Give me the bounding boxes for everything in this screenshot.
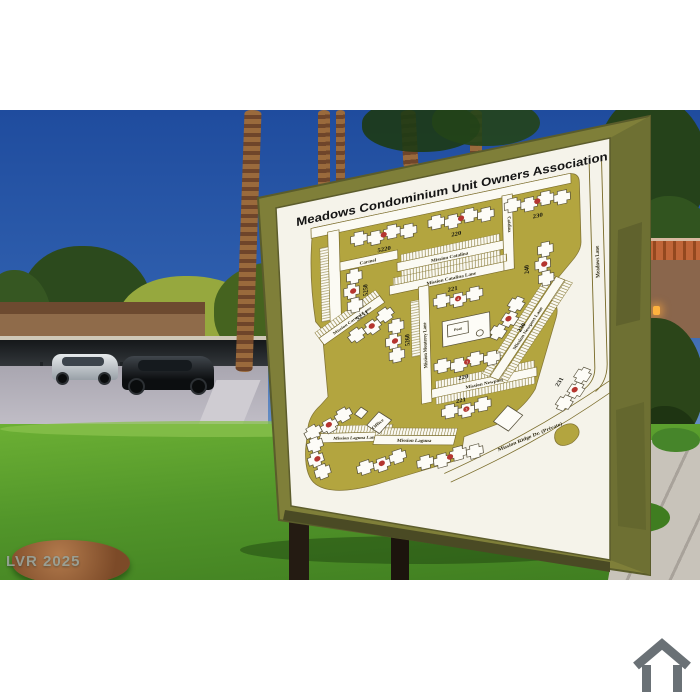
watermark: LVR 2025 [6, 553, 80, 570]
marker-label: 4 [457, 297, 459, 301]
parking-row [320, 247, 330, 323]
marker-label: 3 [465, 408, 467, 412]
parking-row [375, 428, 457, 436]
parking-row [410, 300, 420, 358]
listing-photo-page: { "photo": { "watermark": "LVR 2025", "s… [0, 0, 700, 700]
building-label: 240 [523, 264, 531, 274]
street-label: Mission Laguna [396, 439, 432, 444]
street-label: Meadows Lane [594, 244, 601, 278]
home-icon [630, 634, 694, 694]
building-label: 5260 [404, 333, 412, 346]
photograph: Meadows Condominium Unit Owners Associat… [0, 110, 700, 580]
frame-mottling [616, 402, 646, 530]
community-map-sign: Meadows Condominium Unit Owners Associat… [0, 110, 700, 580]
building-label: 5250 [362, 283, 370, 296]
street-label: Catalina [506, 216, 512, 234]
frame-mottling [616, 222, 642, 326]
marker-label: 1 [466, 360, 468, 364]
